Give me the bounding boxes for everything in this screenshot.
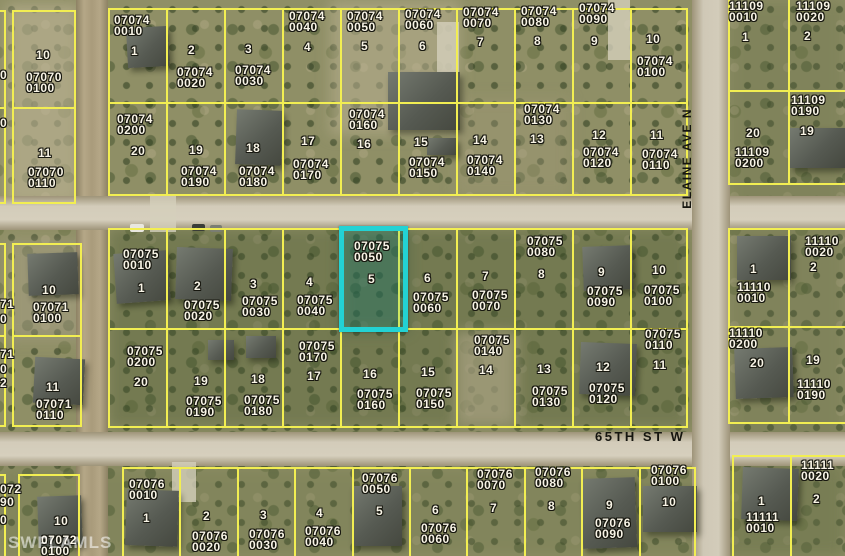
parcel-block[interactable]	[0, 474, 6, 556]
parcel-boundary-line	[179, 467, 181, 556]
parcel-block[interactable]	[732, 455, 845, 556]
parcel-block[interactable]	[728, 0, 845, 185]
parcel-boundary-line	[409, 467, 411, 556]
parcel-map[interactable]: 07070 010007070 011007074 001007074 0020…	[0, 0, 845, 556]
parcel-block[interactable]	[18, 474, 80, 556]
parcel-boundary-line	[294, 467, 296, 556]
parcel-boundary-line	[581, 467, 583, 556]
parcel-boundary-line	[352, 467, 354, 556]
road-elaine-ave	[692, 0, 730, 556]
parcel-boundary-line	[790, 455, 792, 556]
driveway	[150, 196, 176, 232]
parcel-boundary-line	[524, 467, 526, 556]
street-label-elaine-ave-n: ELAINE AVE N	[680, 108, 694, 209]
parcel-boundary-line	[728, 90, 845, 92]
parcel-boundary-line	[108, 102, 688, 104]
parcel-boundary-line	[466, 467, 468, 556]
selected-parcel-highlight[interactable]	[339, 226, 408, 332]
parcel-boundary-line	[788, 0, 790, 185]
parcel-boundary-line	[0, 107, 6, 109]
parcel-boundary-line	[728, 326, 845, 328]
parcel-boundary-line	[0, 335, 6, 337]
parcel-boundary-line	[12, 107, 76, 109]
parcel-boundary-line	[12, 335, 82, 337]
parcel-boundary-line	[237, 467, 239, 556]
street-label-65th-st-w: 65TH ST W	[595, 429, 685, 444]
parcel-boundary-line	[639, 467, 641, 556]
